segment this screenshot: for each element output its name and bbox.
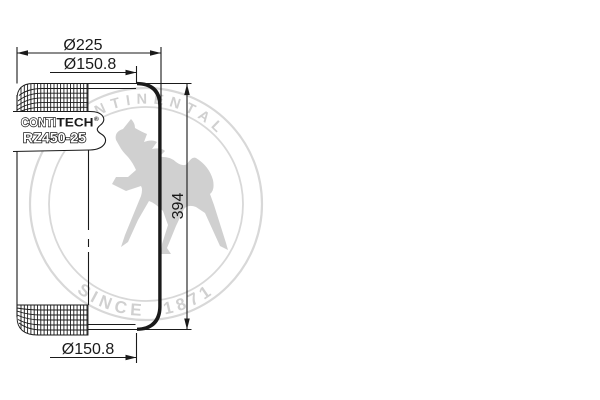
brand-text-tech: TECH: [57, 116, 94, 130]
technical-drawing-page: CONTINENTAL SINCE 1871: [0, 0, 600, 400]
registered-trademark-symbol: ®: [94, 115, 99, 123]
arrowhead-right: [150, 50, 161, 55]
dim-value-height: 394: [170, 193, 187, 220]
dim-value-top-bead: Ø150.8: [64, 56, 117, 73]
brand-text-conti: CONTI: [21, 116, 56, 130]
watermark-since-arc: SINCE 1871: [74, 280, 218, 321]
label-plate: CONTI TECH ® RZ450-25: [13, 112, 106, 152]
arrowhead-top: [184, 84, 190, 95]
part-number-text: RZ450-25: [23, 130, 86, 146]
dimension-overall-height: 394: [170, 84, 190, 330]
rearing-horse-icon: [112, 119, 228, 254]
arrowhead: [126, 70, 137, 75]
dimension-bottom-bead-diameter: Ø150.8: [50, 333, 137, 363]
arrowhead-left: [17, 50, 28, 55]
bottom-bellows-mesh: [17, 305, 88, 335]
dim-value-bottom-bead: Ø150.8: [62, 341, 115, 358]
top-bellows-mesh: [17, 83, 88, 113]
arrowhead: [126, 355, 137, 360]
air-spring-drawing: CONTINENTAL SINCE 1871: [0, 0, 600, 400]
dim-value-outer-diameter: Ø225: [63, 37, 102, 54]
dimension-top-bead-diameter: Ø150.8: [50, 56, 137, 83]
arrowhead-bottom: [184, 319, 190, 330]
